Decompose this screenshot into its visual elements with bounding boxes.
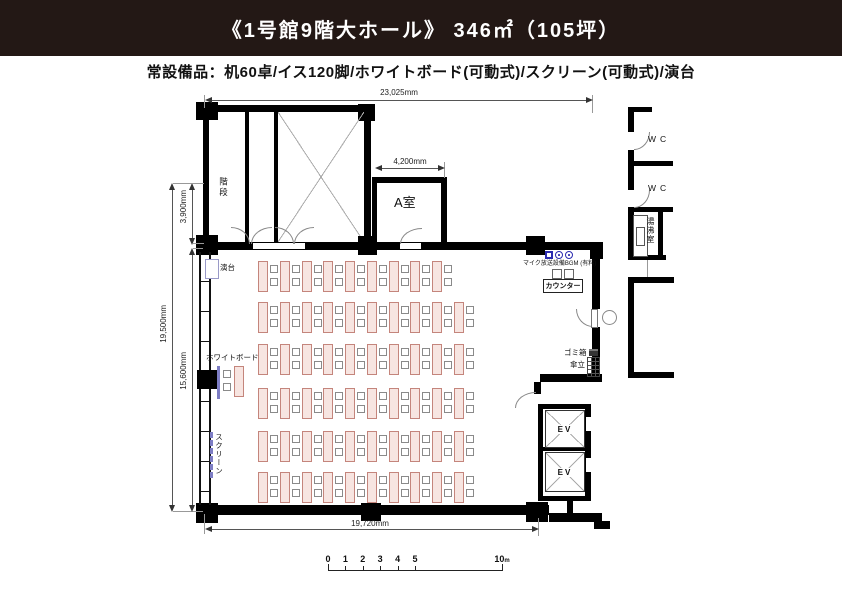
- scale-tick: [363, 566, 364, 571]
- wall-segment: [549, 513, 598, 522]
- chair: [422, 306, 430, 314]
- umbrella-label: 傘立: [570, 361, 585, 369]
- counter-box: カウンター: [543, 279, 583, 293]
- dimension-arrow: [169, 183, 175, 190]
- desk: [280, 431, 290, 462]
- chair: [270, 392, 278, 400]
- chair: [444, 476, 452, 484]
- wall-segment: [628, 161, 673, 166]
- desk: [410, 431, 420, 462]
- chair: [270, 306, 278, 314]
- chair: [401, 405, 409, 413]
- desk: [367, 344, 377, 375]
- scale-tick: [398, 566, 399, 571]
- chair: [466, 306, 474, 314]
- desk: [432, 388, 442, 419]
- desk: [432, 302, 442, 333]
- wall-segment: [372, 177, 377, 244]
- door-leaf: [591, 309, 598, 328]
- desk: [258, 472, 268, 503]
- desk: [302, 302, 312, 333]
- desk: [323, 388, 333, 419]
- chair: [466, 435, 474, 443]
- sink-basin: [636, 227, 645, 246]
- ev-shaft-2: EV: [545, 452, 585, 492]
- screen: [210, 432, 213, 478]
- wall-segment: [658, 212, 663, 257]
- chair: [335, 319, 343, 327]
- chair: [401, 448, 409, 456]
- scale-tick: [380, 566, 381, 571]
- wall-segment: [538, 404, 543, 501]
- dim-top: 23,025mm: [339, 88, 459, 97]
- desk: [410, 472, 420, 503]
- wall-segment: [364, 112, 371, 243]
- desk: [389, 431, 399, 462]
- room-stairs-label: 階段: [219, 177, 228, 198]
- desk: [302, 388, 312, 419]
- chair: [335, 435, 343, 443]
- dim-left-inner: 15,600mm: [179, 352, 188, 390]
- chair: [422, 319, 430, 327]
- door-arc: [251, 227, 272, 244]
- dimension-arrow: [189, 248, 195, 255]
- chair: [357, 476, 365, 484]
- chair: [422, 265, 430, 273]
- chair: [422, 361, 430, 369]
- chair: [357, 348, 365, 356]
- chair: [379, 319, 387, 327]
- desk: [432, 472, 442, 503]
- chair: [314, 405, 322, 413]
- chair: [466, 476, 474, 484]
- bgm-badge-icon: [565, 251, 573, 259]
- dimension-arrow: [532, 526, 539, 532]
- desk: [410, 261, 420, 292]
- scale-tick: [328, 564, 329, 571]
- desk: [454, 431, 464, 462]
- chair: [270, 476, 278, 484]
- chair: [357, 265, 365, 273]
- counter-checkbox: [552, 269, 562, 279]
- chair: [270, 319, 278, 327]
- desk: [258, 344, 268, 375]
- desk: [389, 261, 399, 292]
- wc-lower-label: WC: [648, 184, 670, 193]
- counter-checkbox: [564, 269, 574, 279]
- chair: [401, 348, 409, 356]
- podium: [205, 259, 219, 279]
- chair: [444, 348, 452, 356]
- desk: [302, 261, 312, 292]
- desk: [323, 344, 333, 375]
- column: [196, 503, 218, 523]
- chair: [444, 265, 452, 273]
- chair: [314, 319, 322, 327]
- chair: [444, 448, 452, 456]
- desk: [432, 344, 442, 375]
- chair: [422, 405, 430, 413]
- chair: [314, 348, 322, 356]
- chair: [379, 348, 387, 356]
- chair: [466, 448, 474, 456]
- chair: [357, 319, 365, 327]
- chair: [379, 278, 387, 286]
- desk: [258, 388, 268, 419]
- chair: [444, 278, 452, 286]
- chair: [357, 306, 365, 314]
- kitchenette-label: 湯沸室: [646, 217, 654, 244]
- dimension-line: [208, 529, 536, 530]
- desk: [323, 472, 333, 503]
- dimension-line: [192, 186, 193, 240]
- chair: [223, 383, 231, 391]
- chair: [401, 476, 409, 484]
- desk: [258, 431, 268, 462]
- wc-upper-label: WC: [648, 135, 670, 144]
- wall-segment: [538, 404, 591, 409]
- chair: [314, 448, 322, 456]
- scale-unit: m: [504, 558, 509, 564]
- chair: [314, 306, 322, 314]
- scale-tick: [502, 564, 503, 571]
- desk: [345, 388, 355, 419]
- chair: [357, 448, 365, 456]
- desk: [345, 302, 355, 333]
- chair: [335, 392, 343, 400]
- desk: [323, 431, 333, 462]
- chair: [444, 405, 452, 413]
- door-opening: [586, 458, 591, 472]
- scale-number: 3: [378, 554, 383, 564]
- scale-bar: 01234510m: [328, 556, 518, 576]
- chair: [292, 476, 300, 484]
- scale-number: 5: [412, 554, 417, 564]
- dimension-arrow: [189, 183, 195, 190]
- wall-segment: [628, 107, 652, 112]
- chair: [292, 265, 300, 273]
- room-a-label: A室: [394, 196, 416, 209]
- desk: [302, 344, 312, 375]
- desk: [367, 472, 377, 503]
- chair: [444, 489, 452, 497]
- mic-badge-icon: [545, 251, 553, 259]
- equipment-note: 常設備品：机60卓/イス120脚/ホワイトボード(可動式)/スクリーン(可動式)…: [0, 61, 842, 82]
- wall-segment: [245, 112, 249, 243]
- trash-label: ゴミ箱: [564, 349, 587, 357]
- dim-left-outer: 19,500mm: [159, 305, 168, 343]
- whiteboard: [217, 366, 220, 399]
- chair: [401, 265, 409, 273]
- wall-segment: [628, 372, 674, 378]
- desk: [280, 344, 290, 375]
- ev-label: EV: [557, 425, 574, 434]
- podium-label: 演台: [220, 264, 235, 272]
- door-arc-ev-hall: [515, 392, 536, 408]
- chair: [422, 476, 430, 484]
- dimension-arrow: [189, 238, 195, 245]
- wall-segment: [203, 105, 371, 112]
- desk: [454, 302, 464, 333]
- chair: [422, 489, 430, 497]
- wall-segment: [372, 177, 447, 183]
- chair: [335, 489, 343, 497]
- umbrella-stand-icon: [587, 357, 600, 377]
- dimension-arrow: [205, 526, 212, 532]
- chair: [444, 435, 452, 443]
- chair: [401, 278, 409, 286]
- desk: [389, 302, 399, 333]
- door-circle-symbol: [602, 310, 617, 325]
- dimension-line: [208, 100, 590, 101]
- chair: [401, 306, 409, 314]
- chair: [335, 306, 343, 314]
- chair: [401, 435, 409, 443]
- chair: [444, 306, 452, 314]
- chair: [379, 392, 387, 400]
- chair: [466, 392, 474, 400]
- chair: [422, 348, 430, 356]
- dimension-line: [378, 168, 440, 169]
- desk: [410, 388, 420, 419]
- dimension-arrow: [586, 97, 593, 103]
- chair: [292, 278, 300, 286]
- desk: [389, 344, 399, 375]
- chair: [314, 489, 322, 497]
- chair: [379, 435, 387, 443]
- chair: [379, 448, 387, 456]
- dimension-line: [172, 186, 173, 508]
- chair: [444, 319, 452, 327]
- chair: [466, 405, 474, 413]
- chair: [401, 392, 409, 400]
- wall-segment: [592, 242, 600, 309]
- ev-label: EV: [557, 468, 574, 477]
- chair: [379, 405, 387, 413]
- chair: [357, 405, 365, 413]
- chair: [422, 392, 430, 400]
- chair: [357, 361, 365, 369]
- chair: [335, 265, 343, 273]
- chair: [223, 370, 231, 378]
- wall-segment: [594, 521, 610, 529]
- desk: [367, 388, 377, 419]
- chair: [357, 489, 365, 497]
- trash-icon: [589, 349, 598, 356]
- chair: [314, 265, 322, 273]
- chair: [314, 361, 322, 369]
- chair: [379, 476, 387, 484]
- whiteboard-label: ホワイトボード: [206, 354, 259, 362]
- chair: [292, 306, 300, 314]
- dimension-line: [647, 260, 648, 277]
- elevator-shaft: [278, 112, 364, 242]
- desk: [280, 261, 290, 292]
- chair: [422, 435, 430, 443]
- wall-segment: [628, 277, 674, 283]
- page-title: 《1号館9階大ホール》 346㎡（105坪）: [222, 14, 621, 43]
- desk: [389, 388, 399, 419]
- chair: [270, 448, 278, 456]
- desk: [280, 388, 290, 419]
- chair: [335, 476, 343, 484]
- desk: [410, 344, 420, 375]
- ev-shaft-1: EV: [545, 410, 585, 448]
- scale-number: 2: [360, 554, 365, 564]
- dim-left-upper: 3,900mm: [179, 190, 188, 223]
- desk: [454, 388, 464, 419]
- chair: [292, 448, 300, 456]
- speaker-badge-icon: [555, 251, 563, 259]
- column: [196, 102, 218, 120]
- chair: [270, 361, 278, 369]
- desk: [367, 302, 377, 333]
- dimension-arrow: [189, 505, 195, 512]
- desk: [345, 261, 355, 292]
- scale-number: 0: [325, 554, 330, 564]
- chair: [466, 489, 474, 497]
- desk: [280, 302, 290, 333]
- desk: [345, 472, 355, 503]
- desk: [454, 472, 464, 503]
- wall-segment: [628, 150, 634, 190]
- chair: [401, 361, 409, 369]
- desk: [302, 431, 312, 462]
- dim-room-a: 4,200mm: [375, 157, 445, 166]
- chair: [292, 319, 300, 327]
- chair: [314, 278, 322, 286]
- dimension-arrow: [169, 505, 175, 512]
- chair: [270, 278, 278, 286]
- wall-segment: [628, 277, 634, 378]
- chair: [466, 348, 474, 356]
- scale-number: 1: [343, 554, 348, 564]
- chair: [335, 278, 343, 286]
- desk: [323, 302, 333, 333]
- chair: [292, 361, 300, 369]
- dim-bottom: 19,720mm: [310, 519, 430, 528]
- desk: [367, 261, 377, 292]
- column: [526, 236, 545, 255]
- scale-number: 4: [395, 554, 400, 564]
- desk: [454, 344, 464, 375]
- chair: [444, 361, 452, 369]
- column: [526, 502, 548, 522]
- floor-plan-page: 《1号館9階大ホール》 346㎡（105坪） 常設備品：机60卓/イス120脚/…: [0, 0, 842, 595]
- chair: [466, 361, 474, 369]
- desk: [367, 431, 377, 462]
- chair: [466, 319, 474, 327]
- scale-number: 10m: [494, 554, 509, 564]
- chair: [270, 265, 278, 273]
- chair: [379, 306, 387, 314]
- chair: [270, 405, 278, 413]
- desk: [280, 472, 290, 503]
- wall-segment: [441, 177, 447, 244]
- chair: [292, 435, 300, 443]
- chair: [379, 265, 387, 273]
- chair: [401, 319, 409, 327]
- chair: [422, 448, 430, 456]
- chair: [422, 278, 430, 286]
- chair: [357, 278, 365, 286]
- chair: [444, 392, 452, 400]
- chair: [292, 405, 300, 413]
- door-arc-room-a: [400, 228, 422, 244]
- chair: [292, 392, 300, 400]
- desk: [432, 261, 442, 292]
- chair: [270, 348, 278, 356]
- scale-tick: [415, 566, 416, 571]
- chair: [379, 489, 387, 497]
- desk: [258, 261, 268, 292]
- desk: [410, 302, 420, 333]
- header-bar: 《1号館9階大ホール》 346㎡（105坪）: [0, 0, 842, 56]
- chair: [270, 435, 278, 443]
- chair: [357, 435, 365, 443]
- desk: [234, 366, 244, 397]
- dimension-line: [173, 183, 203, 184]
- mic-system-label: マイク放送設備BGM (有料): [523, 261, 596, 267]
- dimension-line: [173, 511, 203, 512]
- chair: [270, 489, 278, 497]
- chair: [335, 448, 343, 456]
- chair: [335, 348, 343, 356]
- chair: [335, 405, 343, 413]
- chair: [314, 476, 322, 484]
- chair: [314, 392, 322, 400]
- desk: [302, 472, 312, 503]
- chair: [292, 489, 300, 497]
- screen-label: スクリーン: [215, 433, 223, 476]
- desk: [432, 431, 442, 462]
- chair: [292, 348, 300, 356]
- desk: [345, 431, 355, 462]
- desk: [323, 261, 333, 292]
- column: [197, 370, 218, 389]
- dimension-line: [192, 251, 193, 507]
- chair: [335, 361, 343, 369]
- chair: [314, 435, 322, 443]
- scale-tick: [345, 566, 346, 571]
- chair: [379, 361, 387, 369]
- chair: [401, 489, 409, 497]
- chair: [357, 392, 365, 400]
- desk: [389, 472, 399, 503]
- door-opening: [586, 417, 591, 431]
- wall-segment: [203, 105, 209, 247]
- desk: [345, 344, 355, 375]
- dimension-arrow: [205, 97, 212, 103]
- desk: [258, 302, 268, 333]
- wall-segment: [538, 496, 591, 501]
